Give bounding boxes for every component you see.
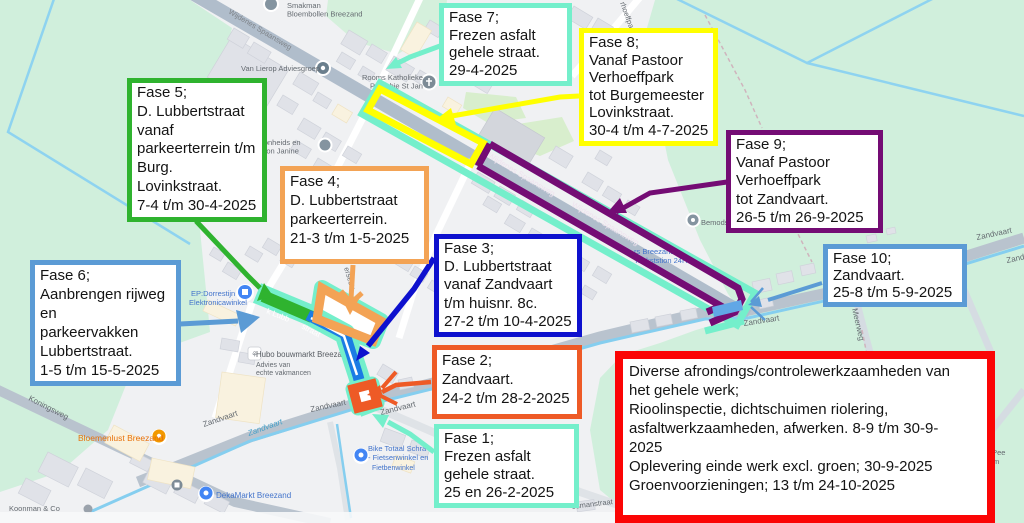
svg-text:echte vakmancen: echte vakmancen: [256, 370, 311, 377]
svg-text:Hubo bouwmarkt Breeza: Hubo bouwmarkt Breeza: [256, 350, 342, 359]
svg-text:- Fietsenwinkel en: - Fietsenwinkel en: [368, 453, 428, 462]
svg-text:DekaMarkt Breezand: DekaMarkt Breezand: [216, 491, 291, 500]
svg-text:Van Lierop Adviesgroep: Van Lierop Adviesgroep: [241, 64, 320, 73]
svg-text:Koonman & Co: Koonman & Co: [9, 504, 60, 513]
svg-text:Advies van: Advies van: [256, 362, 290, 369]
svg-text:EP:Dorrestijn: EP:Dorrestijn: [191, 289, 235, 298]
svg-text:Bike Totaal Schra: Bike Totaal Schra: [368, 444, 427, 453]
svg-text:Bloemenlust Breezand: Bloemenlust Breezand: [78, 433, 164, 443]
svg-text:Elektronicawinkel: Elektronicawinkel: [189, 298, 247, 307]
svg-text:Fietbenwinkel: Fietbenwinkel: [372, 465, 415, 472]
svg-text:Bloembollen Breezand: Bloembollen Breezand: [287, 10, 362, 19]
